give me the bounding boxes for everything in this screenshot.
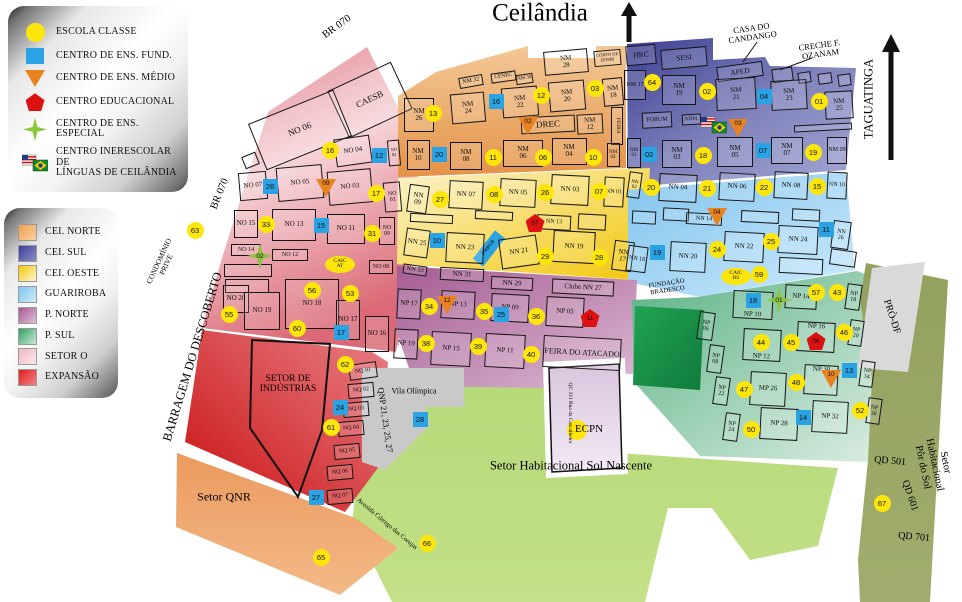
marker-number: 45 <box>787 338 795 347</box>
block-nm-17: NM 17 <box>624 70 646 100</box>
block-nn-09: NN 09 <box>406 184 430 215</box>
marker-number: 38 <box>422 339 430 348</box>
block-label: NP 12 <box>752 352 770 360</box>
legend-label: CENTRO DE ENS. ESPECIAL <box>56 119 178 140</box>
block-no-15: NO 15 <box>234 210 258 238</box>
marker-number: 64 <box>648 78 656 87</box>
marker-number: 10 <box>827 371 834 378</box>
block-label: FEIRA <box>614 118 620 134</box>
marker-number: 13 <box>429 109 437 118</box>
school-circle-marker: 40 <box>523 346 540 363</box>
school-circle-marker: 53 <box>342 285 359 302</box>
marker-number: 02 <box>256 253 263 260</box>
block-label: NO 20 <box>227 295 246 302</box>
flags-icon <box>22 154 48 172</box>
block-label: NO 01 <box>384 190 400 203</box>
block-label: NP 10 <box>744 310 762 318</box>
block-103 <box>792 208 821 221</box>
marker-number: 29 <box>541 252 549 261</box>
school-circle-marker: 27 <box>432 191 449 208</box>
block-nm-23: NM 23 <box>770 79 808 111</box>
block-nn-29: NN 29 <box>491 275 534 290</box>
block-label: NN 24 <box>788 236 807 244</box>
marker-number: 03 <box>734 120 741 127</box>
block-label: NN 03 <box>560 186 579 194</box>
label-vila-ol-mpica: Vila Olímpica <box>391 388 436 397</box>
school-circle-marker: 08 <box>486 186 503 203</box>
marker-number: 28 <box>595 253 603 262</box>
legend-region-item: CEI. NORTE <box>18 224 108 241</box>
marker-number: 59 <box>755 270 763 279</box>
north-arrow-head-icon <box>882 34 900 52</box>
school-circle-marker: 39 <box>470 338 487 355</box>
fund-square-marker: 04 <box>757 89 772 104</box>
block-label: NM 24 <box>457 100 478 116</box>
block-label: NM 20 <box>556 88 577 104</box>
block-feira-do-atacado: FEIRA DO ATACADO <box>542 335 622 371</box>
legend-label: SETOR O <box>45 352 88 363</box>
marker-number: 33 <box>262 220 270 229</box>
marker-number: 16 <box>326 146 334 155</box>
school-circle-marker: 34 <box>421 298 438 315</box>
block-nn-06: NN 06 <box>718 172 755 202</box>
block-label: NQ 05 <box>339 447 356 454</box>
block-label: APED <box>730 66 750 76</box>
school-circle-marker: 59 <box>751 266 768 283</box>
block-nm-10: NM 10 <box>407 140 430 170</box>
marker-number: 67 <box>878 499 886 508</box>
marker-number: 25 <box>767 237 775 246</box>
label-qc-311-rua-da-cascalheira: QC 311 Rua da Cascalheira <box>566 383 572 444</box>
block-label: NM 09 <box>828 147 845 153</box>
block-label: ADM. <box>684 116 698 122</box>
marker-number: 52 <box>856 406 864 415</box>
school-circle-marker: 47 <box>736 381 753 398</box>
legend-region-item: P. NORTE <box>18 307 108 324</box>
legend-item-circle: ESCOLA CLASSE <box>22 23 178 42</box>
marker-number: 35 <box>480 307 488 316</box>
marker-number: 04 <box>713 209 720 216</box>
marker-number: 15 <box>317 221 325 230</box>
block-nm-03: NM 03 <box>662 140 692 168</box>
fund-square-marker: 15 <box>314 218 329 233</box>
marker-number: 18 <box>699 151 707 160</box>
marker-number: 39 <box>474 342 482 351</box>
block-nm-01: NM 01 <box>627 138 641 168</box>
school-circle-marker: 10 <box>585 149 602 166</box>
block-nm-18: NM 18 <box>602 77 624 107</box>
marker-number: 28 <box>416 415 424 424</box>
school-circle-marker: 33 <box>258 216 275 233</box>
block-label: NP 22 <box>714 384 729 398</box>
block-np-11: NP 11 <box>484 333 526 369</box>
block-label: NM 07 <box>777 143 797 157</box>
marker-number: 20 <box>435 150 443 159</box>
block-feira: FEIRA <box>611 107 623 145</box>
block-label: HRC <box>633 51 649 60</box>
block-label: NN 21 <box>509 247 529 257</box>
block-label: NP 19 <box>397 340 415 348</box>
school-circle-marker: 02 <box>699 83 716 100</box>
block-label: Clube NN 27 <box>564 282 602 291</box>
block-np-15: NP 15 <box>430 331 472 367</box>
school-circle-marker: 06 <box>535 149 552 166</box>
legend-region-item: EXPANSÃO <box>18 369 108 386</box>
block-label: NM 05 <box>725 145 745 159</box>
block-label: NM 21 <box>726 86 747 101</box>
block-np-22: NP 22 <box>712 376 731 406</box>
block-nq-02: NQ 02 <box>347 381 374 398</box>
circle-shape <box>26 23 45 42</box>
school-circle-marker: 65 <box>313 549 330 566</box>
legend-region-item: CEI. OESTE <box>18 265 108 282</box>
block-nm-09: NM 09 <box>827 137 847 164</box>
marker-number: 55 <box>225 310 233 319</box>
marker-number: 07 <box>595 187 603 196</box>
block-nm-08: NM 08 <box>450 142 482 170</box>
block-nm-20: NM 20 <box>548 79 586 112</box>
marker-number: 25 <box>497 310 505 319</box>
block-label: NN 25 <box>407 238 427 248</box>
block-label: NM 08 <box>456 149 476 163</box>
block-no-02: NO 02 <box>387 140 401 167</box>
legend-label: GUARIROBA <box>45 289 106 300</box>
block-label: NO 04 <box>343 146 363 156</box>
block-nn-10: NN 10 <box>826 171 847 199</box>
block-nn-25: NN 25 <box>403 227 431 258</box>
block-label: NO 07 <box>243 182 262 191</box>
block-label: NO 08 <box>373 264 389 270</box>
marker-number: 02 <box>524 118 531 125</box>
school-circle-marker: 38 <box>418 335 435 352</box>
fund-square-marker: 10 <box>430 233 445 248</box>
block-nm-25: NM 25 <box>824 90 853 119</box>
block-label: NO 03 <box>340 183 359 192</box>
marker-number: 22 <box>760 183 768 192</box>
legend-label: CENTRO EDUCACIONAL <box>56 97 174 108</box>
block-54 <box>837 73 852 87</box>
block-mp-26: MP 26 <box>749 371 787 407</box>
legend-label: CENTRO DE ENS. MÉDIO <box>56 73 175 84</box>
block-76 <box>578 213 607 230</box>
marker-number: 04 <box>760 92 768 101</box>
block-label: NM 30 <box>517 75 532 82</box>
block-74 <box>475 210 513 221</box>
school-circle-marker: 16 <box>322 142 339 159</box>
block-label: NN 29 <box>502 279 521 287</box>
marker-number: 21 <box>703 184 711 193</box>
block-nq-04: NQ 04 <box>337 419 364 436</box>
block-nn-19: NN 19 <box>552 230 596 264</box>
block-label: MP 26 <box>759 385 778 393</box>
legend-label: EXPANSÃO <box>45 372 99 383</box>
marker-number: 20 <box>647 183 655 192</box>
block-np-08: NP 08 <box>706 344 725 374</box>
marker-number: 02 <box>645 150 653 159</box>
block-label: NO 06 <box>287 121 313 139</box>
block-no-04: NO 04 <box>333 135 373 168</box>
legend-item-square: CENTRO DE ENS. FUND. <box>22 48 178 64</box>
block-label: NO 18 <box>303 300 322 307</box>
block-label: CAESB <box>355 90 385 111</box>
marker-number: 16 <box>492 97 500 106</box>
legend-label: CEI. NORTE <box>45 227 101 238</box>
school-circle-marker: 19 <box>805 144 822 161</box>
block-label: NM 18 <box>603 84 622 100</box>
block-53 <box>817 72 832 85</box>
block-label: NM 01 <box>628 148 640 158</box>
block-label: NN 06 <box>727 183 746 191</box>
block-label: NO 09 <box>380 225 394 237</box>
block-nn-23: NN 23 <box>445 232 485 264</box>
marker-number: 27 <box>436 195 444 204</box>
block-label: CORPO DE BOMB <box>594 52 620 63</box>
fund-square-marker: 20 <box>432 147 447 162</box>
fund-square-marker: 07 <box>756 143 771 158</box>
block-label: NN 26 <box>832 228 850 242</box>
fund-square-marker: 18 <box>746 293 761 308</box>
block-73 <box>409 212 452 223</box>
block-label: NN 05 <box>508 189 527 197</box>
marker-number: 15 <box>813 182 821 191</box>
marker-number: 14 <box>799 413 807 422</box>
marker-number: 50 <box>747 425 755 434</box>
fund-square-marker: 13 <box>842 363 857 378</box>
block-nn-31: NN 31 <box>440 266 485 281</box>
block-nn-08: NN 08 <box>773 171 808 200</box>
fund-square-marker: 26 <box>263 179 278 194</box>
marker-number: 40 <box>527 350 535 359</box>
legend-label: CENTRO DE ENS. FUND. <box>56 51 172 62</box>
marker-number: 56 <box>308 286 316 295</box>
block-label: NN 01 <box>606 189 622 196</box>
block-label: NM 22 <box>509 94 530 110</box>
marker-number: 57 <box>812 288 820 297</box>
marker-number: 03 <box>591 84 599 93</box>
school-circle-marker: 48 <box>788 374 805 391</box>
school-circle-marker: 63 <box>187 222 204 239</box>
block-102 <box>741 210 780 224</box>
fund-square-marker: 11 <box>819 222 834 237</box>
school-circle-marker: 11 <box>485 149 502 166</box>
block-label: NN 23 <box>455 244 474 252</box>
block-label: NM 28 <box>555 54 576 70</box>
school-circle-marker: 13 <box>425 105 442 122</box>
region-color-swatch <box>18 328 37 345</box>
triangle-shape <box>25 70 45 87</box>
marker-number: 36 <box>532 312 540 321</box>
block-label: NP 16 <box>808 323 826 331</box>
block-label: NQ 04 <box>343 424 360 431</box>
block-label: NM 23 <box>779 87 800 102</box>
block-label: NQ 01 <box>355 367 372 375</box>
marker-number: 10 <box>589 153 597 162</box>
school-circle-marker: 22 <box>756 179 773 196</box>
marker-number: 61 <box>327 423 335 432</box>
fund-square-marker: 02 <box>642 147 657 162</box>
block-label: NP 28 <box>770 420 788 428</box>
caic-oval-marker: CAIC AT <box>325 256 355 273</box>
block-nm-12: NM 12 <box>576 113 603 134</box>
block-label: NO 05 <box>290 179 309 188</box>
marker-number: 13 <box>845 366 853 375</box>
block-nm-04: NM 04 <box>552 138 587 165</box>
region-color-swatch <box>18 245 37 262</box>
block-nn-20: NN 20 <box>669 241 707 273</box>
block-label: NP 32 <box>821 413 839 421</box>
block-np-17: NP 17 <box>396 288 422 319</box>
block-label: NN 14 <box>696 216 712 223</box>
block-nm-07: NM 07 <box>771 137 803 164</box>
block-label: NP 24 <box>724 420 739 434</box>
block-label: NN 07 <box>456 191 475 199</box>
square-shape <box>26 48 44 64</box>
marker-number: 65 <box>317 553 325 562</box>
block-clube-nn-27: Clube NN 27 <box>552 278 615 296</box>
block-label: NO 13 <box>285 221 304 228</box>
block-label: NM 04 <box>559 144 579 158</box>
school-circle-marker: 07 <box>591 183 608 200</box>
block-label: NN 31 <box>452 270 471 278</box>
block-nn-18: NN 18 <box>625 245 648 274</box>
block-nq-07: NQ 07 <box>326 487 353 504</box>
school-circle-marker: 28 <box>591 249 608 266</box>
marker-number: 17 <box>337 328 345 337</box>
school-circle-marker: 45 <box>783 334 800 351</box>
region-park <box>633 306 704 390</box>
marker-number: CAIC AT <box>330 259 350 270</box>
block-np-05: NP 05 <box>545 296 585 328</box>
marker-number: 26 <box>541 188 549 197</box>
legend-region-item: CEI. SUL <box>18 245 108 262</box>
region-color-swatch <box>18 265 37 282</box>
marker-number: 46 <box>840 328 848 337</box>
school-circle-marker: 64 <box>644 74 661 91</box>
block-label: NN 18 <box>629 255 646 263</box>
school-circle-marker: 55 <box>221 306 238 323</box>
marker-number: 10 <box>433 236 441 245</box>
legend-region-item: P. SUL <box>18 328 108 345</box>
block-label: NN 09 <box>408 191 428 208</box>
school-circle-marker: 26 <box>537 184 554 201</box>
map-canvas: CAESBNO 06NO 04NO 02NO 07NO 05NO 03NO 01… <box>0 0 962 602</box>
block-99 <box>632 210 657 224</box>
legend-label: CEI. OESTE <box>45 269 99 280</box>
block-forum: FORUM <box>642 111 673 129</box>
marker-number: 11 <box>489 153 497 162</box>
block-label: NM 06 <box>513 146 533 160</box>
block-no-08: NO 08 <box>369 260 393 274</box>
school-circle-marker: 12 <box>533 87 550 104</box>
region-color-swatch <box>18 307 37 324</box>
marker-number: 07 <box>531 220 538 227</box>
marker-number: 11 <box>822 225 830 234</box>
marker-number: 48 <box>792 378 800 387</box>
caic-oval-marker: CAIC BS <box>721 268 751 285</box>
school-circle-marker: 46 <box>836 324 853 341</box>
school-circle-marker: 17 <box>368 185 385 202</box>
fund-square-marker: 16 <box>489 94 504 109</box>
label-setor-de-ind-strias: SETOR DE INDÚSTRIAS <box>260 374 316 395</box>
block-label: NO 17 <box>339 316 358 323</box>
block-label: NN 04 <box>668 184 687 192</box>
school-circle-marker: 25 <box>763 233 780 250</box>
block-label: NN 08 <box>781 181 800 189</box>
star-icon <box>22 117 48 141</box>
pentagon-shape <box>26 93 45 111</box>
block-label: NM 12 <box>580 116 601 131</box>
marker-number: 24 <box>336 403 344 412</box>
school-circle-marker: 56 <box>304 282 321 299</box>
school-circle-marker: 20 <box>643 179 660 196</box>
marker-number: 19 <box>809 148 817 157</box>
marker-number: 07 <box>759 146 767 155</box>
marker-number: 63 <box>191 226 199 235</box>
school-circle-marker: 01 <box>811 93 828 110</box>
block-label: NM 19 <box>669 83 689 97</box>
school-circle-marker: 18 <box>695 147 712 164</box>
block-no-16: NO 16 <box>365 316 389 352</box>
block-nm-19: NM 19 <box>662 75 696 105</box>
block-label: NP 17 <box>400 300 418 308</box>
marker-number: 01 <box>815 97 823 106</box>
school-circle-marker: 57 <box>808 284 825 301</box>
fund-square-marker: 27 <box>309 490 324 505</box>
school-circle-marker: 21 <box>699 180 716 197</box>
block-nq-05: NQ 05 <box>333 442 360 459</box>
block-hrc: HRC <box>625 44 657 67</box>
block-label: NP 11 <box>496 347 514 355</box>
block-label: NM 02 <box>608 150 619 160</box>
school-circle-marker: 29 <box>537 248 554 265</box>
block-np-19: NP 19 <box>393 328 419 359</box>
block-label: NQ 02 <box>353 386 370 393</box>
block-label: NM 32 <box>462 76 480 85</box>
fund-square-marker: 14 <box>796 410 811 425</box>
block-np-24: NP 24 <box>722 412 741 442</box>
school-circle-marker: 35 <box>476 303 493 320</box>
marker-number: 08 <box>490 190 498 199</box>
block-label: NQ 07 <box>332 492 349 499</box>
marker-number: 06 <box>812 338 819 345</box>
language-flags-icon <box>701 116 727 134</box>
school-circle-marker: 67 <box>874 495 891 512</box>
marker-number: 60 <box>293 324 301 333</box>
block-label: NN 02 <box>628 179 640 191</box>
block-label: NM 10 <box>408 148 428 162</box>
block-no-09: NO 09 <box>379 217 395 245</box>
marker-number: 06 <box>539 153 547 162</box>
block-nm-21: NM 21 <box>715 77 757 111</box>
block-label: FEIRA DO ATACADO <box>544 347 620 359</box>
marker-number: 31 <box>368 229 376 238</box>
block-label: NP 18 <box>846 290 861 304</box>
block-109 <box>779 257 824 275</box>
region-ecpn-corridor <box>549 364 622 472</box>
label-ecpn: ECPN <box>575 424 603 436</box>
marker-number: 18 <box>749 296 757 305</box>
legend-regions: CEI. NORTECEI. SULCEI. OESTEGUARIROBAP. … <box>4 208 118 398</box>
block-label: NO 11 <box>337 225 356 232</box>
legend-region-item: SETOR O <box>18 348 108 365</box>
school-circle-marker: 44 <box>753 334 770 351</box>
block-label: NO 15 <box>237 220 256 227</box>
marker-number: 01 <box>775 297 782 304</box>
fund-square-marker: 24 <box>333 400 348 415</box>
block-no-13: NO 13 <box>272 209 316 241</box>
marker-number: 12 <box>375 151 383 160</box>
block-nn-21: NN 21 <box>498 235 540 270</box>
